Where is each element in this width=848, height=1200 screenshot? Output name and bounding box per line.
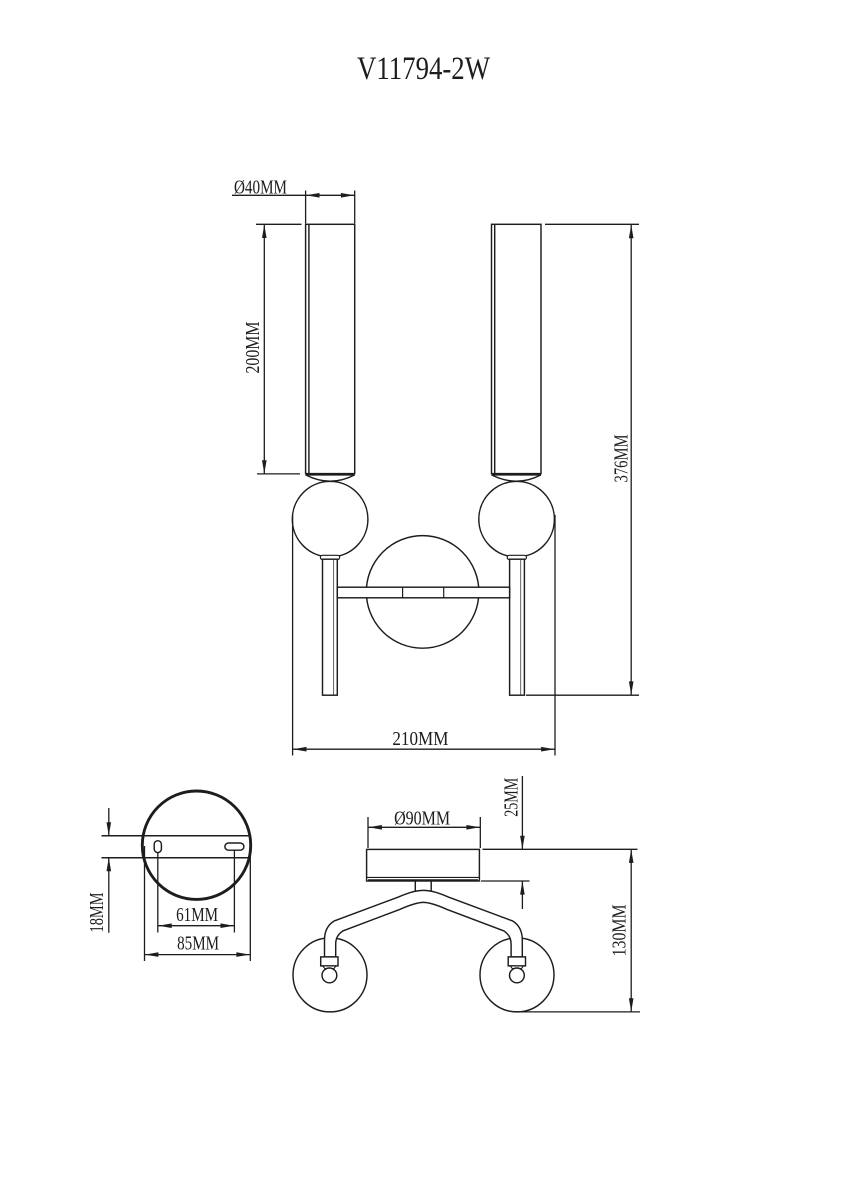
svg-text:18MM: 18MM (86, 893, 108, 933)
svg-text:Ø90MM: Ø90MM (394, 807, 450, 829)
svg-text:210MM: 210MM (392, 728, 448, 750)
svg-text:376MM: 376MM (611, 435, 633, 483)
svg-text:V11794-2W: V11794-2W (357, 51, 491, 87)
svg-text:61MM: 61MM (176, 904, 218, 926)
svg-text:130MM: 130MM (609, 904, 631, 956)
svg-text:85MM: 85MM (177, 933, 219, 955)
svg-text:Ø40MM: Ø40MM (234, 176, 287, 198)
svg-text:25MM: 25MM (501, 778, 523, 817)
svg-text:200MM: 200MM (242, 322, 264, 374)
